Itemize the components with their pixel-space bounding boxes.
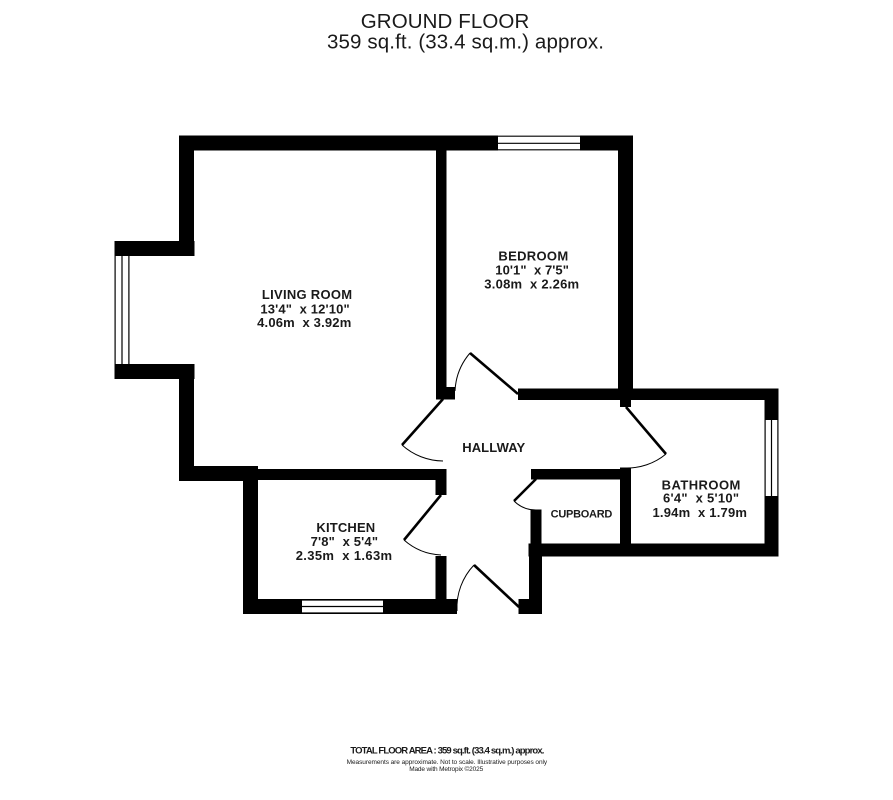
svg-text:Made with Metropix ©2025: Made with Metropix ©2025: [409, 765, 483, 773]
svg-text:CUPBOARD: CUPBOARD: [551, 509, 613, 521]
svg-text:3.08m x 2.26m: 3.08m x 2.26m: [484, 277, 579, 292]
svg-text:10'1" x 7'5": 10'1" x 7'5": [495, 263, 569, 278]
svg-text:359 sq.ft. (33.4 sq.m.) approx: 359 sq.ft. (33.4 sq.m.) approx.: [327, 31, 604, 54]
svg-text:1.94m x 1.79m: 1.94m x 1.79m: [652, 505, 747, 520]
svg-text:4.06m x 3.92m: 4.06m x 3.92m: [257, 315, 351, 330]
svg-text:Measurements are approximate.: Measurements are approximate. Not to sca…: [347, 759, 548, 766]
svg-text:2.35m x 1.63m: 2.35m x 1.63m: [296, 548, 392, 563]
svg-text:BEDROOM: BEDROOM: [498, 248, 568, 263]
svg-text:KITCHEN: KITCHEN: [316, 520, 375, 535]
svg-text:6'4" x 5'10": 6'4" x 5'10": [663, 491, 739, 506]
svg-text:LIVING ROOM: LIVING ROOM: [262, 287, 352, 302]
svg-text:TOTAL FLOOR AREA : 359 sq.ft.: TOTAL FLOOR AREA : 359 sq.ft. (33.4 sq.m…: [350, 745, 544, 756]
svg-text:HALLWAY: HALLWAY: [462, 440, 525, 455]
svg-text:7'8" x 5'4": 7'8" x 5'4": [311, 534, 378, 549]
